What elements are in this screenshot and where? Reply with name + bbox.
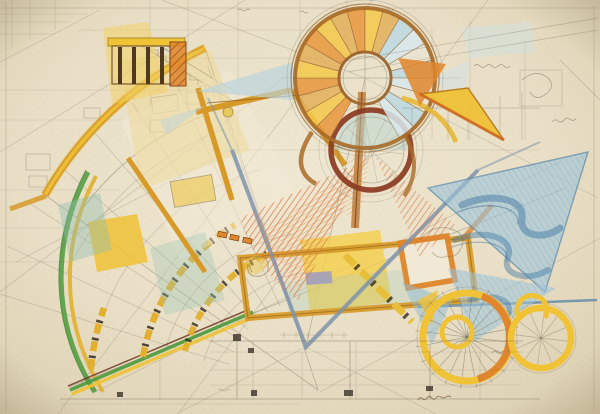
drawing-sheet: [0, 0, 600, 414]
paper-vignette: [0, 0, 600, 414]
artwork-canvas: [0, 0, 600, 414]
